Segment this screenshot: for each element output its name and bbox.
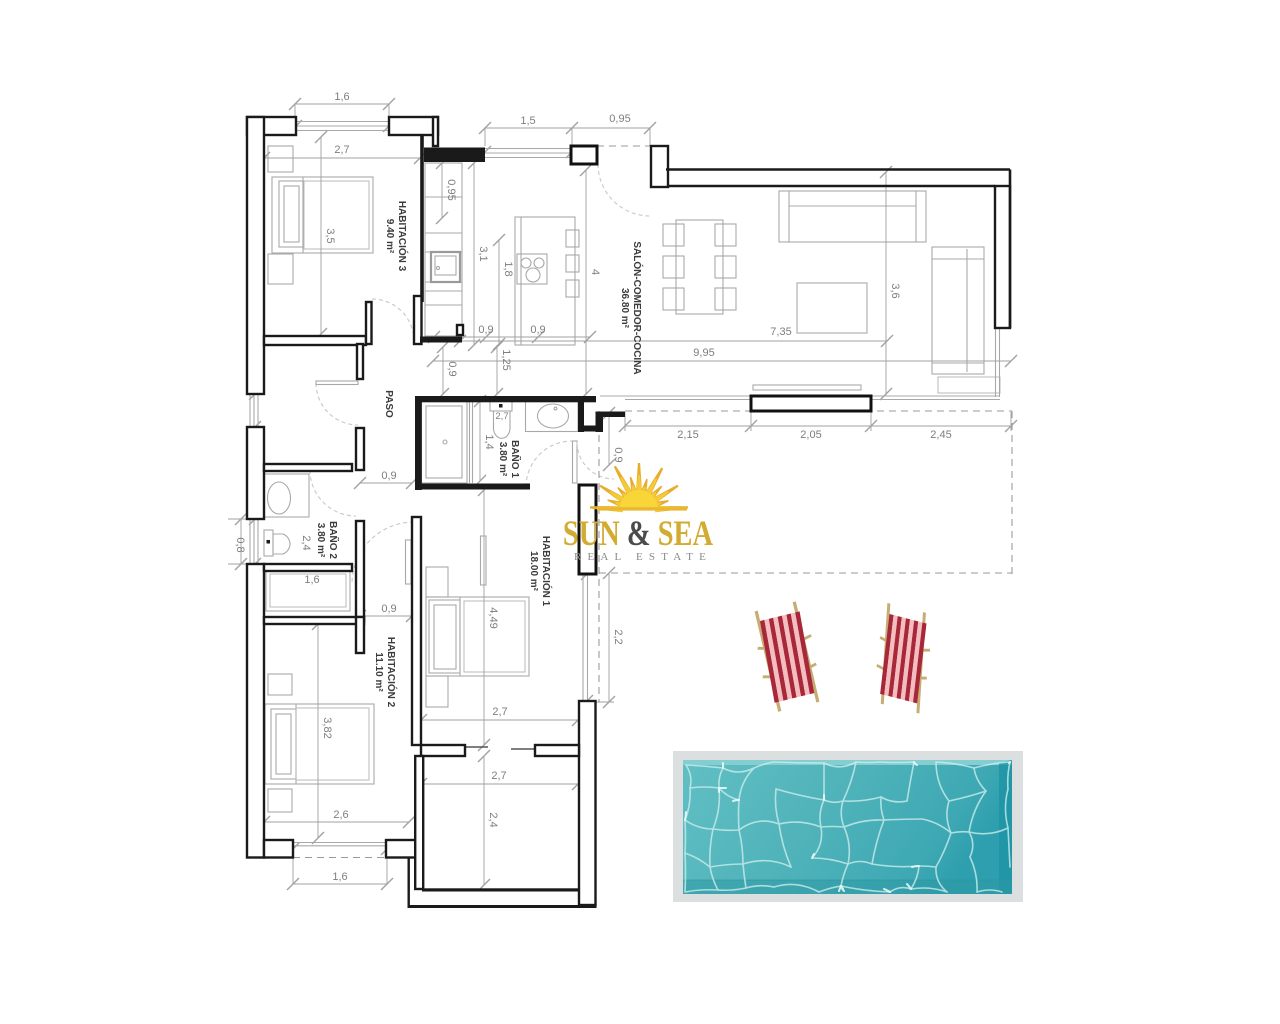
svg-text:1,4: 1,4 (483, 434, 495, 449)
svg-text:9,95: 9,95 (693, 347, 714, 359)
svg-text:1,25: 1,25 (500, 349, 512, 370)
svg-text:2,7: 2,7 (495, 411, 508, 422)
svg-text:2,2: 2,2 (612, 629, 624, 644)
svg-text:2,15: 2,15 (677, 429, 698, 441)
svg-text:1,5: 1,5 (520, 115, 535, 127)
svg-text:0,9: 0,9 (446, 361, 458, 376)
svg-text:1,8: 1,8 (502, 261, 514, 276)
svg-text:SUN & SEA: SUN & SEA (563, 514, 714, 554)
svg-text:1,6: 1,6 (334, 91, 349, 103)
svg-text:1,6: 1,6 (332, 871, 347, 883)
svg-text:BAÑO 23.80 m²: BAÑO 23.80 m² (315, 521, 340, 559)
svg-text:BAÑO 13.80 m²: BAÑO 13.80 m² (497, 440, 522, 478)
svg-text:0,95: 0,95 (445, 179, 457, 200)
svg-text:0,9: 0,9 (381, 603, 396, 615)
svg-text:2,4: 2,4 (487, 812, 499, 827)
svg-text:3,5: 3,5 (324, 228, 336, 243)
svg-text:3,1: 3,1 (477, 246, 489, 261)
svg-text:2,4: 2,4 (300, 535, 312, 550)
svg-text:0,9: 0,9 (612, 447, 624, 462)
svg-text:0,9: 0,9 (381, 470, 396, 482)
svg-text:4: 4 (589, 269, 601, 275)
svg-text:PASO: PASO (383, 390, 394, 418)
svg-text:2,05: 2,05 (800, 429, 821, 441)
svg-text:3,82: 3,82 (321, 717, 333, 738)
svg-text:2,7: 2,7 (491, 770, 506, 782)
svg-text:3,6: 3,6 (889, 283, 901, 298)
svg-text:0,8: 0,8 (234, 537, 246, 552)
svg-text:REAL ESTATE: REAL ESTATE (574, 551, 712, 563)
svg-text:2,7: 2,7 (334, 144, 349, 156)
svg-text:0,9: 0,9 (530, 324, 545, 336)
svg-text:2,6: 2,6 (333, 809, 348, 821)
svg-text:7,35: 7,35 (770, 326, 791, 338)
svg-text:2,45: 2,45 (930, 429, 951, 441)
svg-text:0,95: 0,95 (609, 113, 630, 125)
svg-text:0,9: 0,9 (478, 324, 493, 336)
svg-text:2,7: 2,7 (492, 706, 507, 718)
svg-text:1,6: 1,6 (304, 574, 319, 586)
svg-text:4,49: 4,49 (487, 607, 499, 628)
